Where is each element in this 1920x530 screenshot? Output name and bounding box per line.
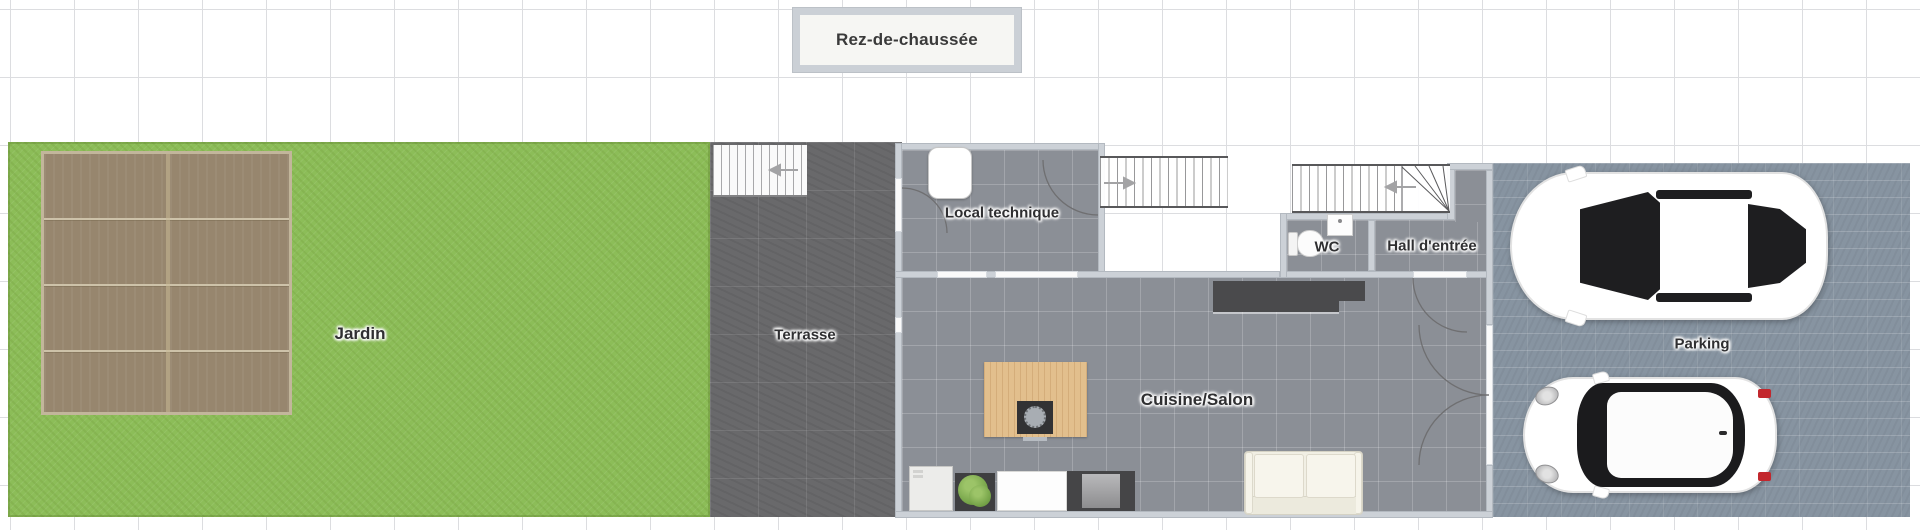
- wall[interactable]: [1447, 163, 1493, 170]
- wall[interactable]: [1368, 220, 1375, 271]
- island-tab: [1023, 437, 1047, 441]
- water-heater[interactable]: [928, 147, 972, 199]
- wood-deck[interactable]: [41, 151, 292, 415]
- car-taillight: [1758, 389, 1771, 398]
- stove[interactable]: [1067, 471, 1135, 511]
- sofa-cushion: [1306, 454, 1356, 498]
- window[interactable]: [895, 317, 902, 333]
- plant: [969, 485, 991, 507]
- terrace-label: Terrasse: [774, 327, 835, 344]
- sofa-cushion: [1254, 454, 1304, 498]
- sink-counter[interactable]: [997, 471, 1067, 511]
- hall-label: Hall d'entrée: [1387, 238, 1476, 255]
- terrace-staircase[interactable]: [713, 145, 807, 197]
- window[interactable]: [895, 178, 902, 232]
- wall[interactable]: [1280, 213, 1455, 220]
- kitchen-counter[interactable]: [1213, 301, 1339, 312]
- wall[interactable]: [1280, 213, 1287, 278]
- winder-staircase[interactable]: [1292, 164, 1450, 213]
- stair-treads: [1292, 166, 1402, 211]
- sofa-armrest: [1245, 452, 1253, 514]
- car-window-strip: [1656, 190, 1752, 199]
- french-door-opening[interactable]: [1486, 325, 1493, 465]
- local-technique-label: Local technique: [945, 205, 1059, 222]
- island-sink: [1024, 406, 1046, 428]
- wall[interactable]: [895, 511, 1493, 518]
- stair-treads: [1100, 158, 1228, 206]
- window[interactable]: [995, 271, 1078, 278]
- wall[interactable]: [1486, 170, 1493, 325]
- stove-inset: [1082, 474, 1120, 508]
- sedan-car[interactable]: [1510, 172, 1828, 320]
- parking-label: Parking: [1674, 336, 1729, 353]
- washbasin[interactable]: [1327, 214, 1353, 236]
- floor-title: Rez-de-chaussée: [836, 30, 978, 50]
- floor-plan-canvas: Rez-de-chaussée: [0, 0, 1920, 530]
- hatchback-car[interactable]: [1523, 377, 1777, 493]
- upper-staircase[interactable]: [1100, 156, 1228, 208]
- stair-rail: [1292, 211, 1450, 213]
- door-opening[interactable]: [1413, 271, 1467, 278]
- car-roof: [1607, 392, 1733, 478]
- garden-label: Jardin: [334, 324, 385, 344]
- stair-rail: [1100, 206, 1228, 208]
- deck-center-seam: [166, 154, 170, 412]
- sofa-backrest: [1253, 496, 1356, 514]
- door-opening[interactable]: [937, 271, 987, 278]
- car-windshield: [1580, 192, 1660, 300]
- wc-label: WC: [1315, 239, 1340, 256]
- plant-stand[interactable]: [955, 473, 995, 511]
- kitchen-living-label: Cuisine/Salon: [1141, 390, 1253, 410]
- sofa[interactable]: [1244, 451, 1363, 515]
- kitchen-island[interactable]: [984, 362, 1087, 437]
- kitchen-counter[interactable]: [1213, 281, 1365, 301]
- floor-title-box[interactable]: Rez-de-chaussée: [793, 8, 1021, 72]
- car-window-strip: [1656, 293, 1752, 302]
- fridge[interactable]: [909, 466, 953, 511]
- car-taillight: [1758, 472, 1771, 481]
- car-door-handle: [1719, 431, 1727, 435]
- wall[interactable]: [895, 143, 1105, 150]
- island-hob: [1017, 401, 1053, 434]
- hall-room-upper[interactable]: [1455, 170, 1486, 222]
